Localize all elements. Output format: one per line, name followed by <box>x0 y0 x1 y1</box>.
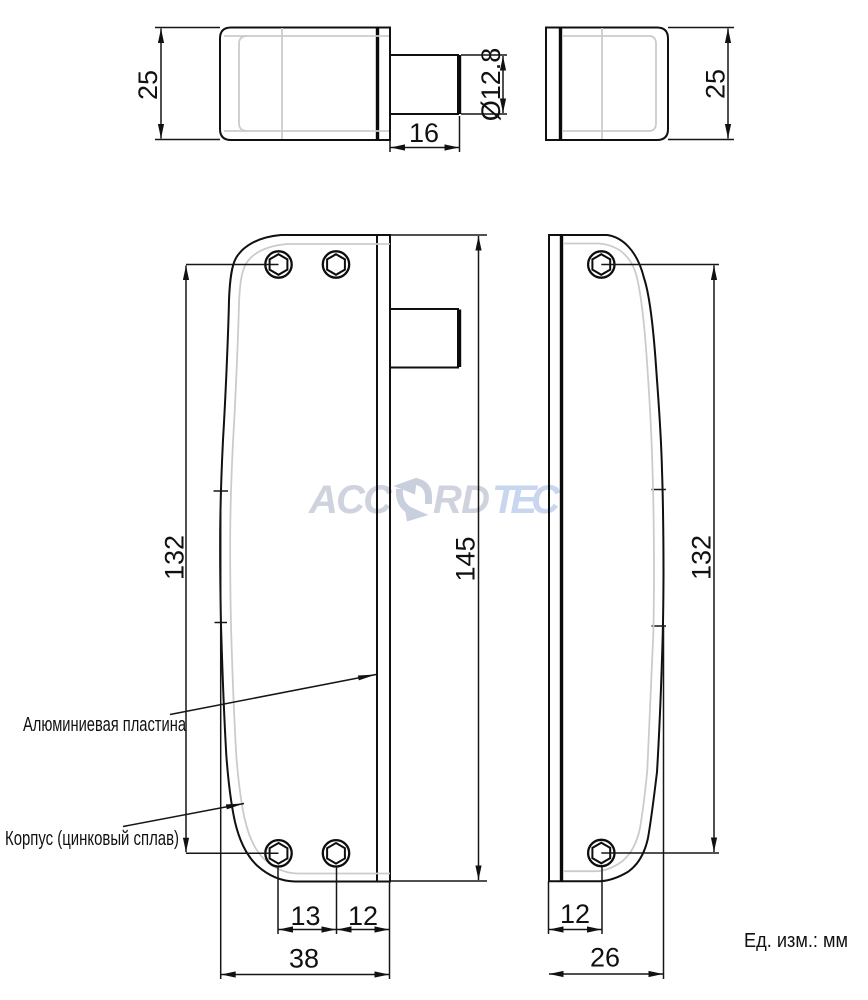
svg-text:Алюминиевая пластина: Алюминиевая пластина <box>23 714 187 736</box>
svg-text:Ед. изм.: мм: Ед. изм.: мм <box>744 930 848 952</box>
svg-text:Ø12.8: Ø12.8 <box>476 48 506 122</box>
svg-text:TEC: TEC <box>492 478 561 522</box>
svg-text:38: 38 <box>289 944 319 974</box>
svg-text:132: 132 <box>687 535 717 580</box>
svg-text:25: 25 <box>701 69 731 99</box>
svg-text:RD: RD <box>433 478 490 522</box>
svg-text:ACC: ACC <box>308 478 393 522</box>
svg-text:12: 12 <box>560 899 590 929</box>
svg-text:16: 16 <box>409 118 439 148</box>
svg-text:26: 26 <box>590 943 620 973</box>
svg-text:Корпус (цинковый сплав): Корпус (цинковый сплав) <box>5 828 179 850</box>
svg-text:132: 132 <box>160 535 190 580</box>
svg-text:13: 13 <box>290 901 320 931</box>
svg-text:25: 25 <box>133 70 163 100</box>
svg-text:12: 12 <box>348 901 378 931</box>
svg-text:145: 145 <box>451 536 481 581</box>
